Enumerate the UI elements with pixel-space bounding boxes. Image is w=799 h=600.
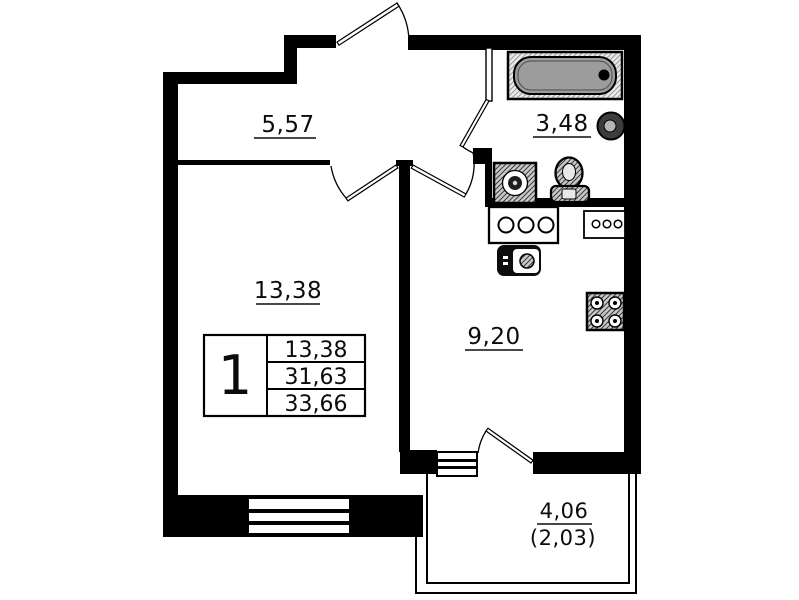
window-living-icon bbox=[248, 498, 350, 534]
room-area-label-balcony: 4,06 bbox=[540, 499, 589, 523]
room-area-label-balcony-reduced: (2,03) bbox=[530, 526, 596, 550]
balcony-outline bbox=[416, 474, 636, 593]
window-balcony-icon bbox=[437, 452, 477, 476]
rooms-count-value: 1 bbox=[218, 344, 252, 407]
door-entrance-icon bbox=[337, 3, 409, 45]
room-area-label-kitchen: 9,20 bbox=[467, 324, 520, 350]
door-kitchen-icon bbox=[411, 152, 474, 197]
wall-top-b bbox=[408, 35, 641, 50]
door-balcony-icon bbox=[478, 428, 533, 463]
door-living-icon bbox=[331, 165, 398, 201]
wall-left bbox=[163, 72, 178, 537]
wall-corner-block bbox=[400, 450, 437, 474]
floor-plan-drawing: 5,57 3,48 13,38 9,20 4,06 (2,03) 1 13,38… bbox=[0, 0, 799, 600]
wall-right bbox=[624, 37, 641, 474]
living-area-value: 13,38 bbox=[285, 338, 348, 363]
stove-icon bbox=[587, 293, 624, 330]
bathtub-icon bbox=[508, 52, 622, 99]
apartment-area-value: 31,63 bbox=[285, 365, 348, 390]
wall-divider-cap bbox=[396, 160, 413, 166]
wall-hall-bottom bbox=[178, 160, 330, 165]
dark-sink-unit-icon bbox=[497, 245, 541, 276]
wall-bath-left-thin bbox=[486, 48, 492, 101]
room-area-label-bathroom: 3,48 bbox=[535, 111, 588, 137]
wall-kitchen-bottom bbox=[533, 452, 624, 474]
room-labels: 5,57 3,48 13,38 9,20 4,06 (2,03) bbox=[254, 111, 596, 550]
kitchen-sink-counter-icon bbox=[489, 207, 558, 243]
wall-top-a bbox=[284, 35, 336, 48]
room-area-label-hallway: 5,57 bbox=[261, 112, 314, 138]
total-area-value: 33,66 bbox=[285, 392, 348, 417]
room-area-label-living: 13,38 bbox=[254, 278, 322, 304]
floor-plan-page: 5,57 3,48 13,38 9,20 4,06 (2,03) 1 13,38… bbox=[0, 0, 799, 600]
wall-top-left bbox=[163, 72, 297, 84]
washing-machine-icon bbox=[494, 163, 536, 203]
apartment-info-table: 1 13,38 31,63 33,66 bbox=[204, 335, 365, 417]
toilet-icon bbox=[551, 158, 589, 203]
wall-divider-living-kitchen bbox=[399, 160, 410, 452]
vent-unit-icon bbox=[584, 211, 625, 238]
round-sink-icon bbox=[598, 113, 625, 140]
